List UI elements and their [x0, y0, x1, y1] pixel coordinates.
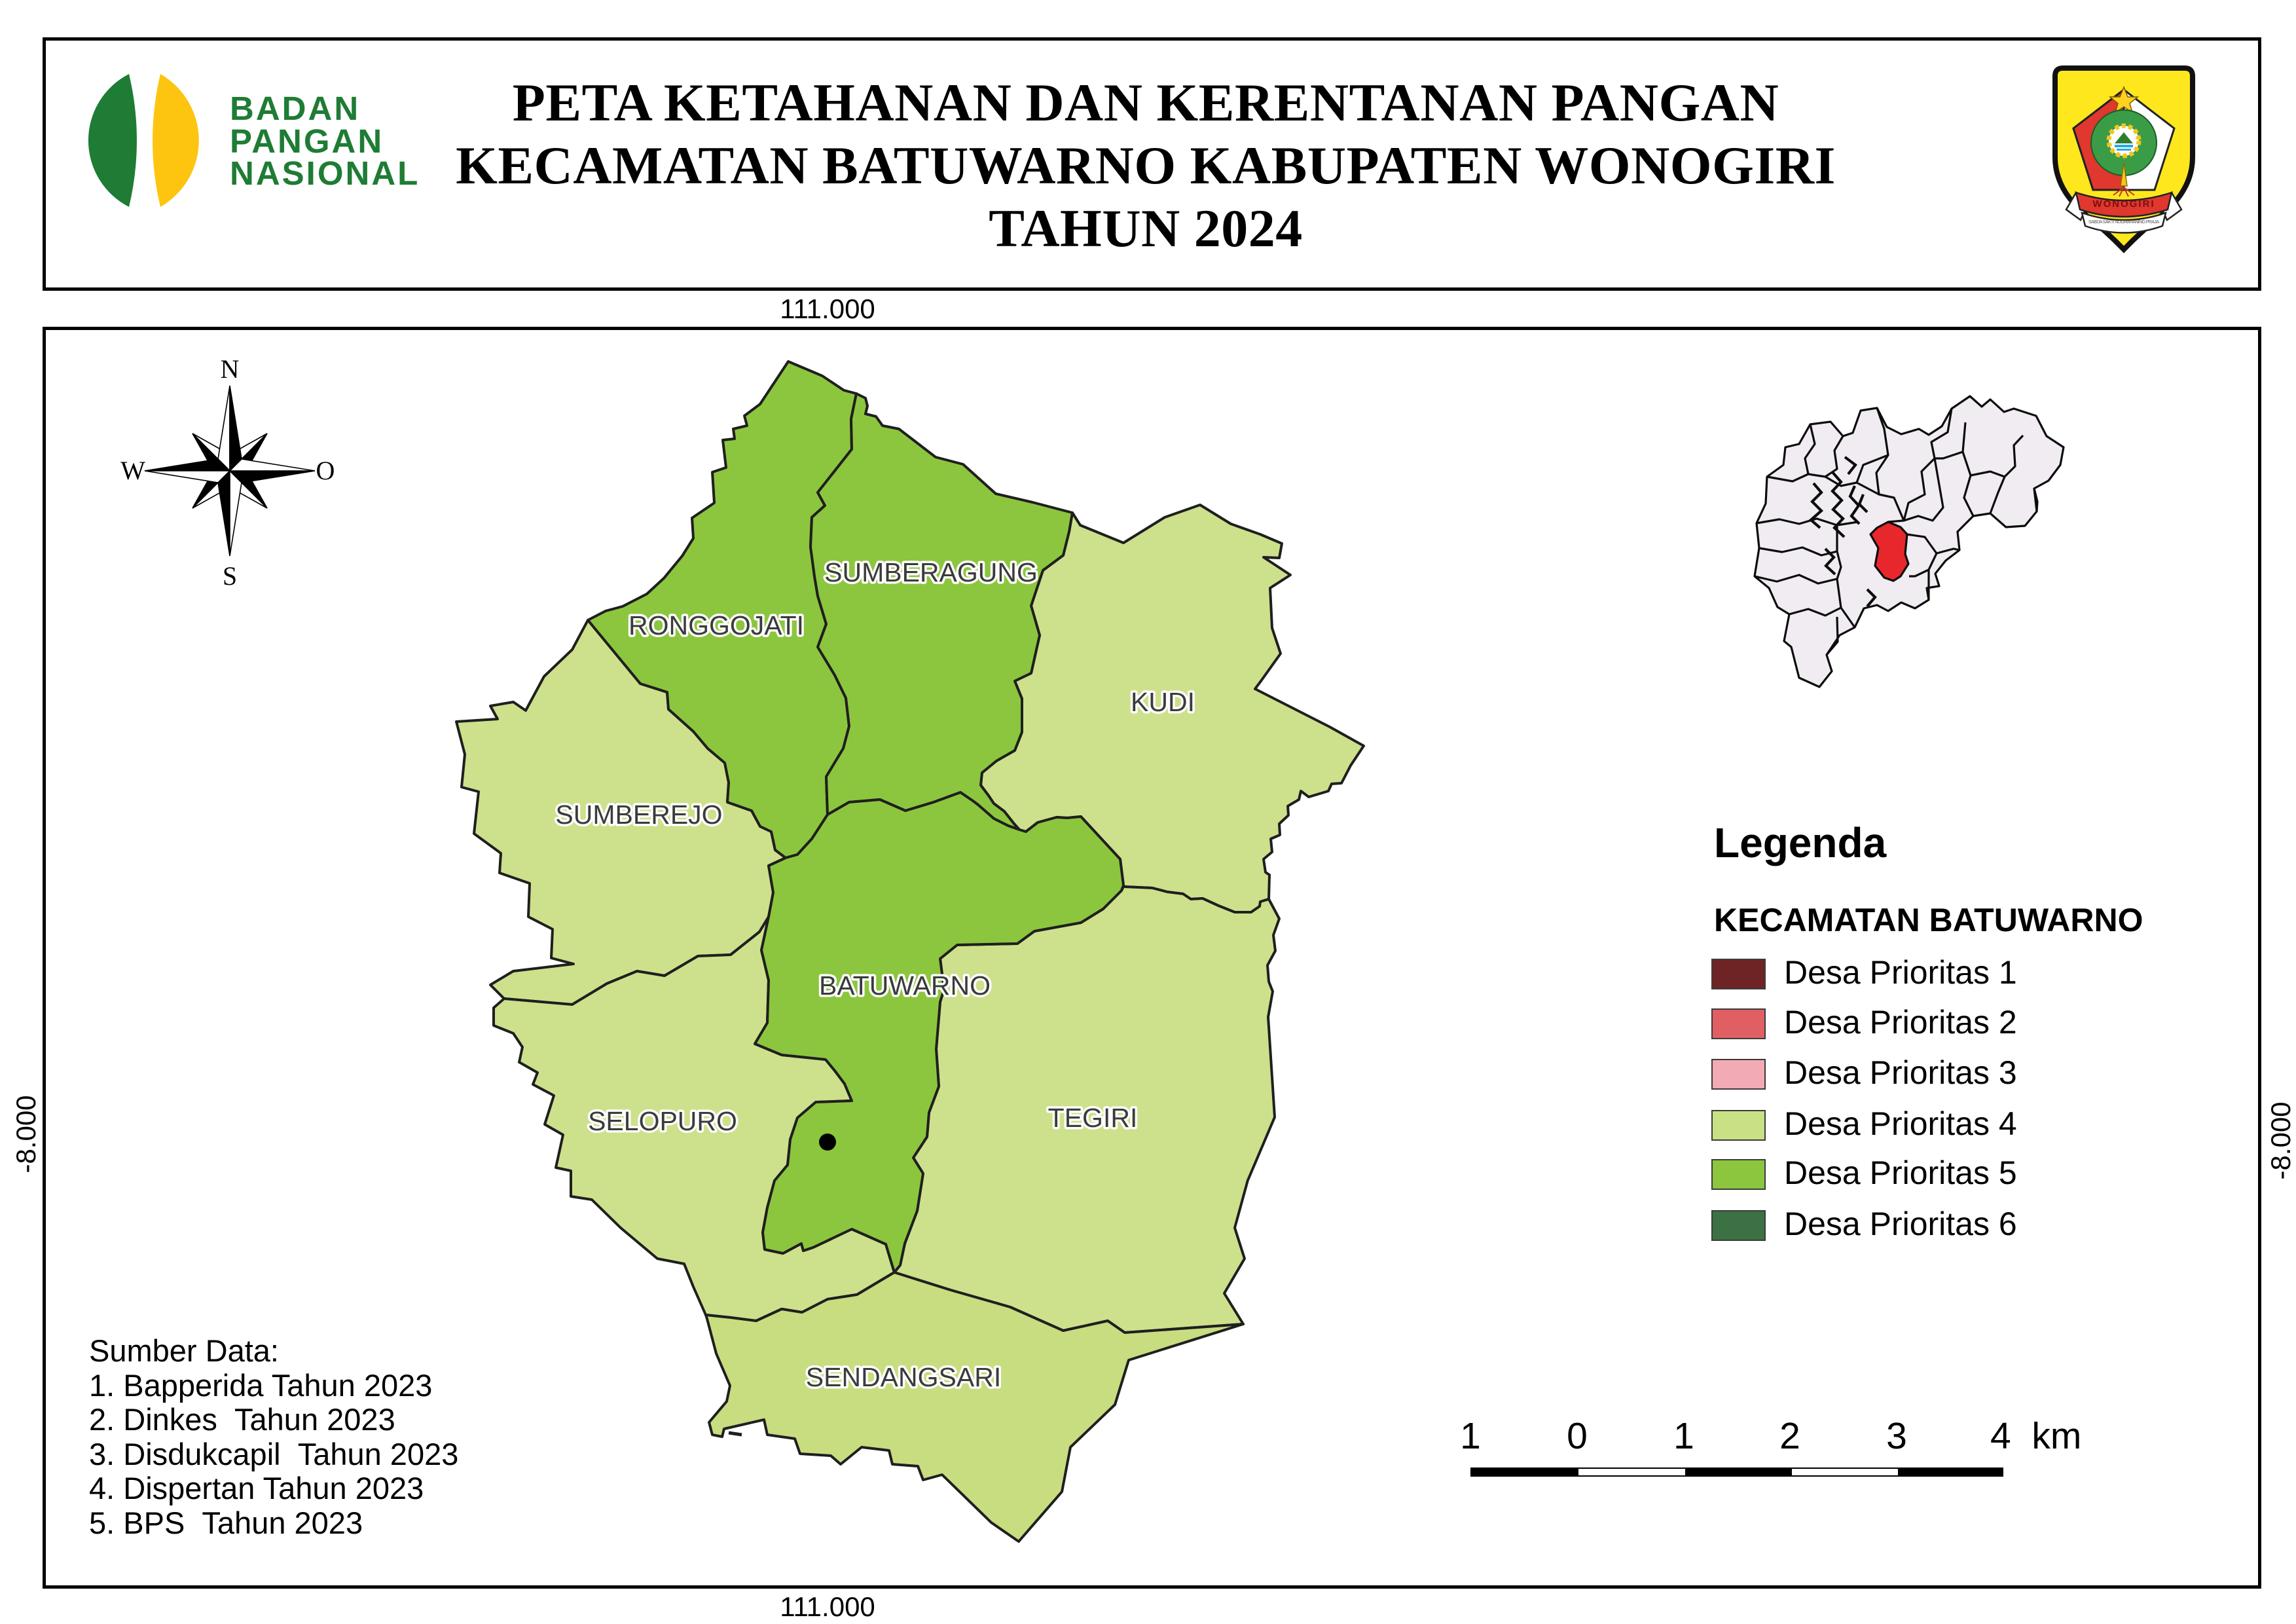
svg-text:SUMBERAGUNG: SUMBERAGUNG	[824, 557, 1038, 587]
svg-text:SUMBEREJO: SUMBEREJO	[555, 800, 722, 830]
svg-text:WONOGIRI: WONOGIRI	[2092, 198, 2155, 210]
svg-text:W: W	[120, 456, 145, 485]
svg-text:O: O	[316, 456, 335, 485]
svg-text:BATUWARNO: BATUWARNO	[819, 970, 991, 1001]
svg-text:N: N	[221, 354, 240, 384]
svg-text:TEGIRI: TEGIRI	[1048, 1103, 1138, 1133]
svg-text:SENDANGSARI: SENDANGSARI	[806, 1362, 1001, 1392]
svg-text:SABDA SAKTI NUGRAHANING PRAJA: SABDA SAKTI NUGRAHANING PRAJA	[2088, 220, 2159, 225]
svg-text:S: S	[223, 561, 237, 589]
svg-text:KUDI: KUDI	[1131, 687, 1195, 717]
svg-text:RONGGOJATI: RONGGOJATI	[629, 610, 804, 640]
svg-text:SELOPURO: SELOPURO	[588, 1106, 737, 1136]
